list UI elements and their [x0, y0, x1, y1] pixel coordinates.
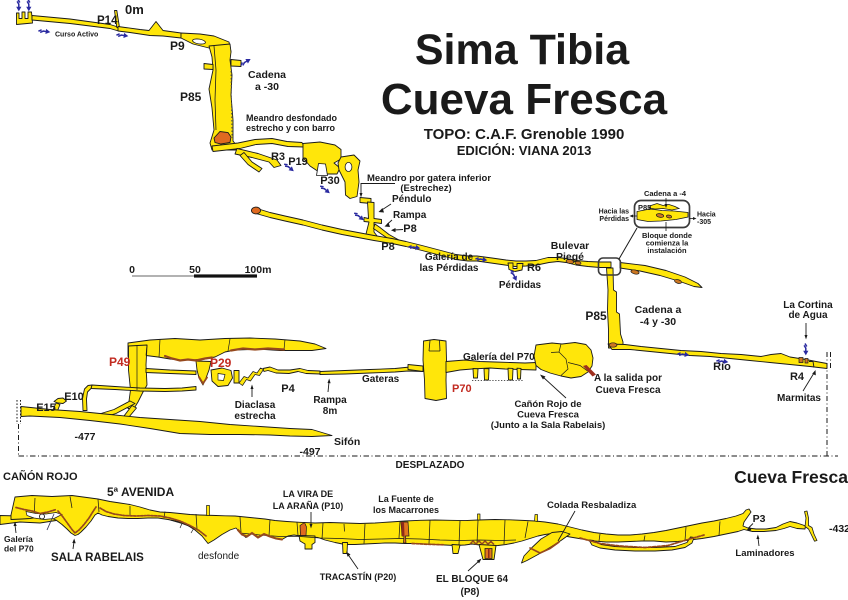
svg-text:desfonde: desfonde: [198, 551, 240, 562]
svg-text:-432: -432: [829, 523, 848, 535]
svg-text:SALA RABELAIS: SALA RABELAIS: [51, 552, 144, 564]
svg-text:0: 0: [129, 264, 135, 276]
svg-text:8m: 8m: [323, 406, 338, 417]
svg-text:La Fuente de: La Fuente de: [378, 494, 434, 504]
svg-text:P85: P85: [638, 203, 651, 212]
svg-text:E10: E10: [64, 391, 84, 403]
svg-text:P4: P4: [281, 383, 295, 395]
svg-text:50: 50: [189, 264, 201, 276]
svg-text:E15: E15: [36, 402, 56, 414]
svg-text:CAÑÓN ROJO: CAÑÓN ROJO: [3, 470, 78, 483]
svg-text:Rampa: Rampa: [313, 395, 347, 406]
svg-text:100m: 100m: [245, 264, 272, 276]
svg-text:Cueva Fresca: Cueva Fresca: [517, 410, 580, 421]
svg-text:DESPLAZADO: DESPLAZADO: [396, 460, 465, 471]
svg-text:Cueva Fresca: Cueva Fresca: [734, 467, 848, 487]
svg-text:(P8): (P8): [461, 587, 480, 598]
svg-text:Marmitas: Marmitas: [777, 393, 821, 404]
svg-text:Río: Río: [713, 361, 731, 373]
svg-text:Cadena: Cadena: [248, 69, 286, 81]
svg-text:Cadena a: Cadena a: [635, 304, 682, 316]
svg-text:Pérdidas: Pérdidas: [599, 216, 629, 223]
svg-text:-4 y -30: -4 y -30: [640, 316, 676, 328]
svg-text:5ª AVENIDA: 5ª AVENIDA: [107, 485, 174, 499]
svg-text:Cadena a -4: Cadena a -4: [644, 189, 687, 198]
svg-text:instalación: instalación: [647, 246, 687, 255]
svg-text:Cueva Fresca: Cueva Fresca: [595, 385, 660, 396]
svg-text:P49: P49: [109, 355, 131, 369]
svg-text:LA VIRA DE: LA VIRA DE: [283, 489, 333, 499]
svg-text:Laminadores: Laminadores: [735, 548, 794, 559]
svg-text:EL BLOQUE 64: EL BLOQUE 64: [436, 574, 508, 585]
svg-text:P30: P30: [320, 175, 340, 187]
svg-text:0m: 0m: [125, 2, 144, 17]
svg-text:las Pérdidas: las Pérdidas: [420, 263, 479, 274]
svg-text:Galería de: Galería de: [425, 252, 474, 263]
svg-text:P14: P14: [97, 15, 118, 27]
svg-text:-497: -497: [299, 446, 320, 458]
svg-text:Colada Resbaladiza: Colada Resbaladiza: [547, 500, 637, 511]
svg-text:Péndulo: Péndulo: [392, 194, 431, 205]
svg-text:P85: P85: [585, 309, 607, 323]
svg-text:Diaclasa: Diaclasa: [235, 400, 276, 411]
svg-text:Rampa: Rampa: [393, 210, 427, 221]
svg-text:P9: P9: [170, 39, 185, 53]
svg-text:TOPO: C.A.F. Grenoble 1990: TOPO: C.A.F. Grenoble 1990: [424, 126, 625, 143]
svg-text:del P70: del P70: [4, 544, 34, 554]
svg-text:P8: P8: [381, 241, 394, 253]
svg-text:TRACASTÍN (P20): TRACASTÍN (P20): [320, 572, 397, 582]
svg-text:Meandro desfondado: Meandro desfondado: [246, 113, 338, 123]
svg-text:de Agua: de Agua: [788, 310, 828, 321]
svg-text:Hacia: Hacia: [697, 212, 716, 219]
svg-text:A la salida por: A la salida por: [594, 373, 662, 384]
svg-text:Sima Tibia: Sima Tibia: [415, 26, 630, 74]
svg-text:Sifón: Sifón: [334, 436, 360, 448]
svg-text:estrecha: estrecha: [234, 411, 276, 422]
svg-text:P85: P85: [180, 90, 202, 104]
svg-text:(Estrechez): (Estrechez): [400, 183, 451, 194]
svg-text:EDICIÓN: VIANA 2013: EDICIÓN: VIANA 2013: [457, 143, 592, 158]
svg-text:Piegé: Piegé: [556, 251, 584, 263]
svg-text:Curso Activo: Curso Activo: [55, 32, 98, 39]
svg-text:Galería: Galería: [4, 534, 33, 544]
svg-text:R4: R4: [790, 371, 805, 383]
svg-text:R6: R6: [527, 262, 541, 274]
svg-text:P29: P29: [210, 356, 232, 370]
svg-text:Hacia las: Hacia las: [599, 209, 629, 216]
svg-text:Pérdidas: Pérdidas: [499, 280, 542, 291]
svg-text:P19: P19: [288, 156, 308, 168]
svg-text:a -30: a -30: [255, 81, 279, 93]
svg-text:R3: R3: [271, 151, 285, 163]
svg-text:los Macarrones: los Macarrones: [373, 505, 439, 515]
svg-text:P70: P70: [452, 383, 472, 395]
svg-text:P3: P3: [753, 513, 766, 525]
svg-text:Cueva Fresca: Cueva Fresca: [381, 75, 668, 124]
svg-text:Gateras: Gateras: [362, 374, 400, 385]
svg-text:(Junto a la Sala Rabelais): (Junto a la Sala Rabelais): [491, 420, 606, 431]
svg-text:-477: -477: [74, 431, 95, 443]
svg-text:Cañón Rojo de: Cañón Rojo de: [514, 399, 581, 410]
svg-text:-305: -305: [697, 219, 711, 226]
svg-text:Galería del P70: Galería del P70: [463, 352, 535, 363]
svg-text:P8: P8: [403, 223, 416, 235]
svg-text:LA ARAÑA (P10): LA ARAÑA (P10): [273, 501, 344, 511]
svg-text:estrecho y con barro: estrecho y con barro: [246, 123, 336, 133]
